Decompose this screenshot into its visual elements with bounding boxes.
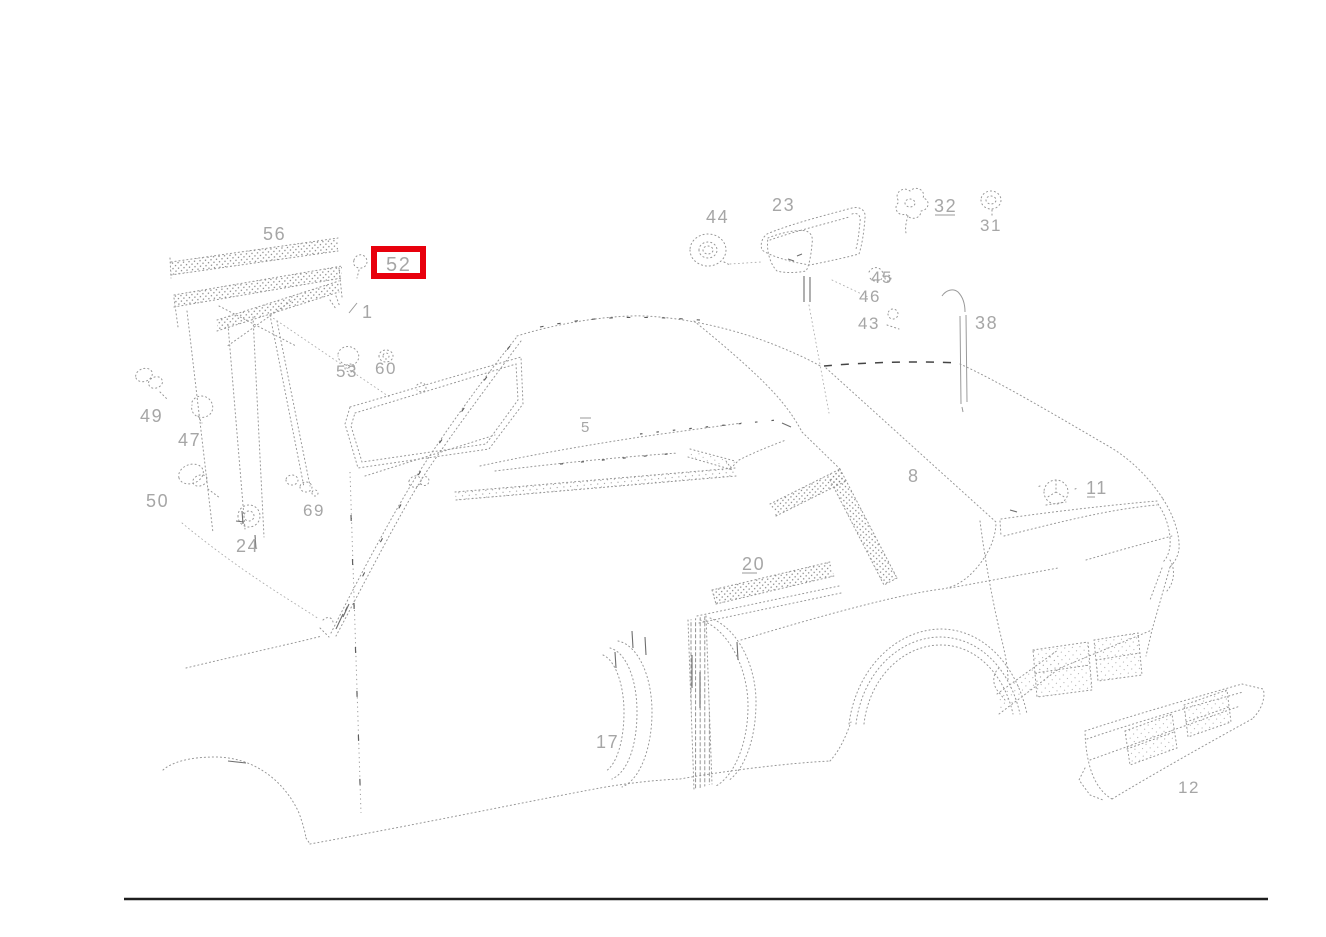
svg-text:60: 60 xyxy=(375,359,397,378)
svg-text:31: 31 xyxy=(980,216,1002,235)
svg-text:46: 46 xyxy=(859,287,881,306)
svg-text:43: 43 xyxy=(858,314,880,333)
svg-text:56: 56 xyxy=(263,224,286,244)
svg-text:45: 45 xyxy=(871,268,893,287)
svg-text:44: 44 xyxy=(706,207,729,227)
svg-text:5: 5 xyxy=(581,419,591,436)
svg-text:20: 20 xyxy=(742,554,765,574)
svg-text:69: 69 xyxy=(303,501,325,520)
svg-text:53: 53 xyxy=(336,362,358,381)
svg-text:52: 52 xyxy=(386,254,411,276)
svg-text:47: 47 xyxy=(178,430,201,450)
svg-text:23: 23 xyxy=(772,195,795,215)
svg-text:12: 12 xyxy=(1178,778,1200,797)
svg-text:24: 24 xyxy=(236,536,259,556)
svg-text:17: 17 xyxy=(596,732,619,752)
svg-text:8: 8 xyxy=(908,466,920,486)
svg-text:1: 1 xyxy=(362,302,374,322)
svg-text:50: 50 xyxy=(146,491,169,511)
svg-text:38: 38 xyxy=(975,313,998,333)
svg-text:49: 49 xyxy=(140,406,163,426)
svg-text:11: 11 xyxy=(1086,478,1108,498)
svg-text:32: 32 xyxy=(934,196,957,216)
